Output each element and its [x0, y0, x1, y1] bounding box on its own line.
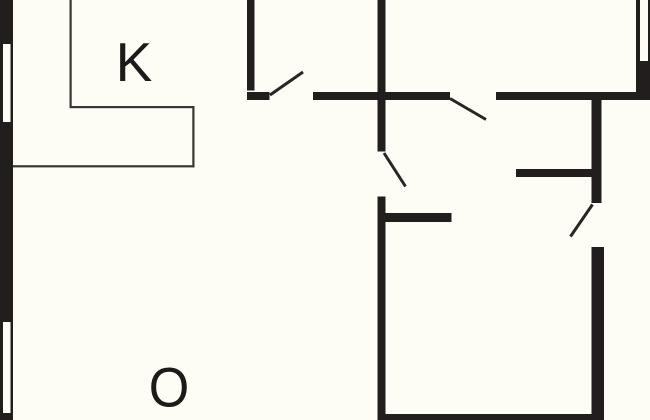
svg-text:K: K: [116, 31, 153, 93]
svg-text:O: O: [149, 356, 190, 419]
